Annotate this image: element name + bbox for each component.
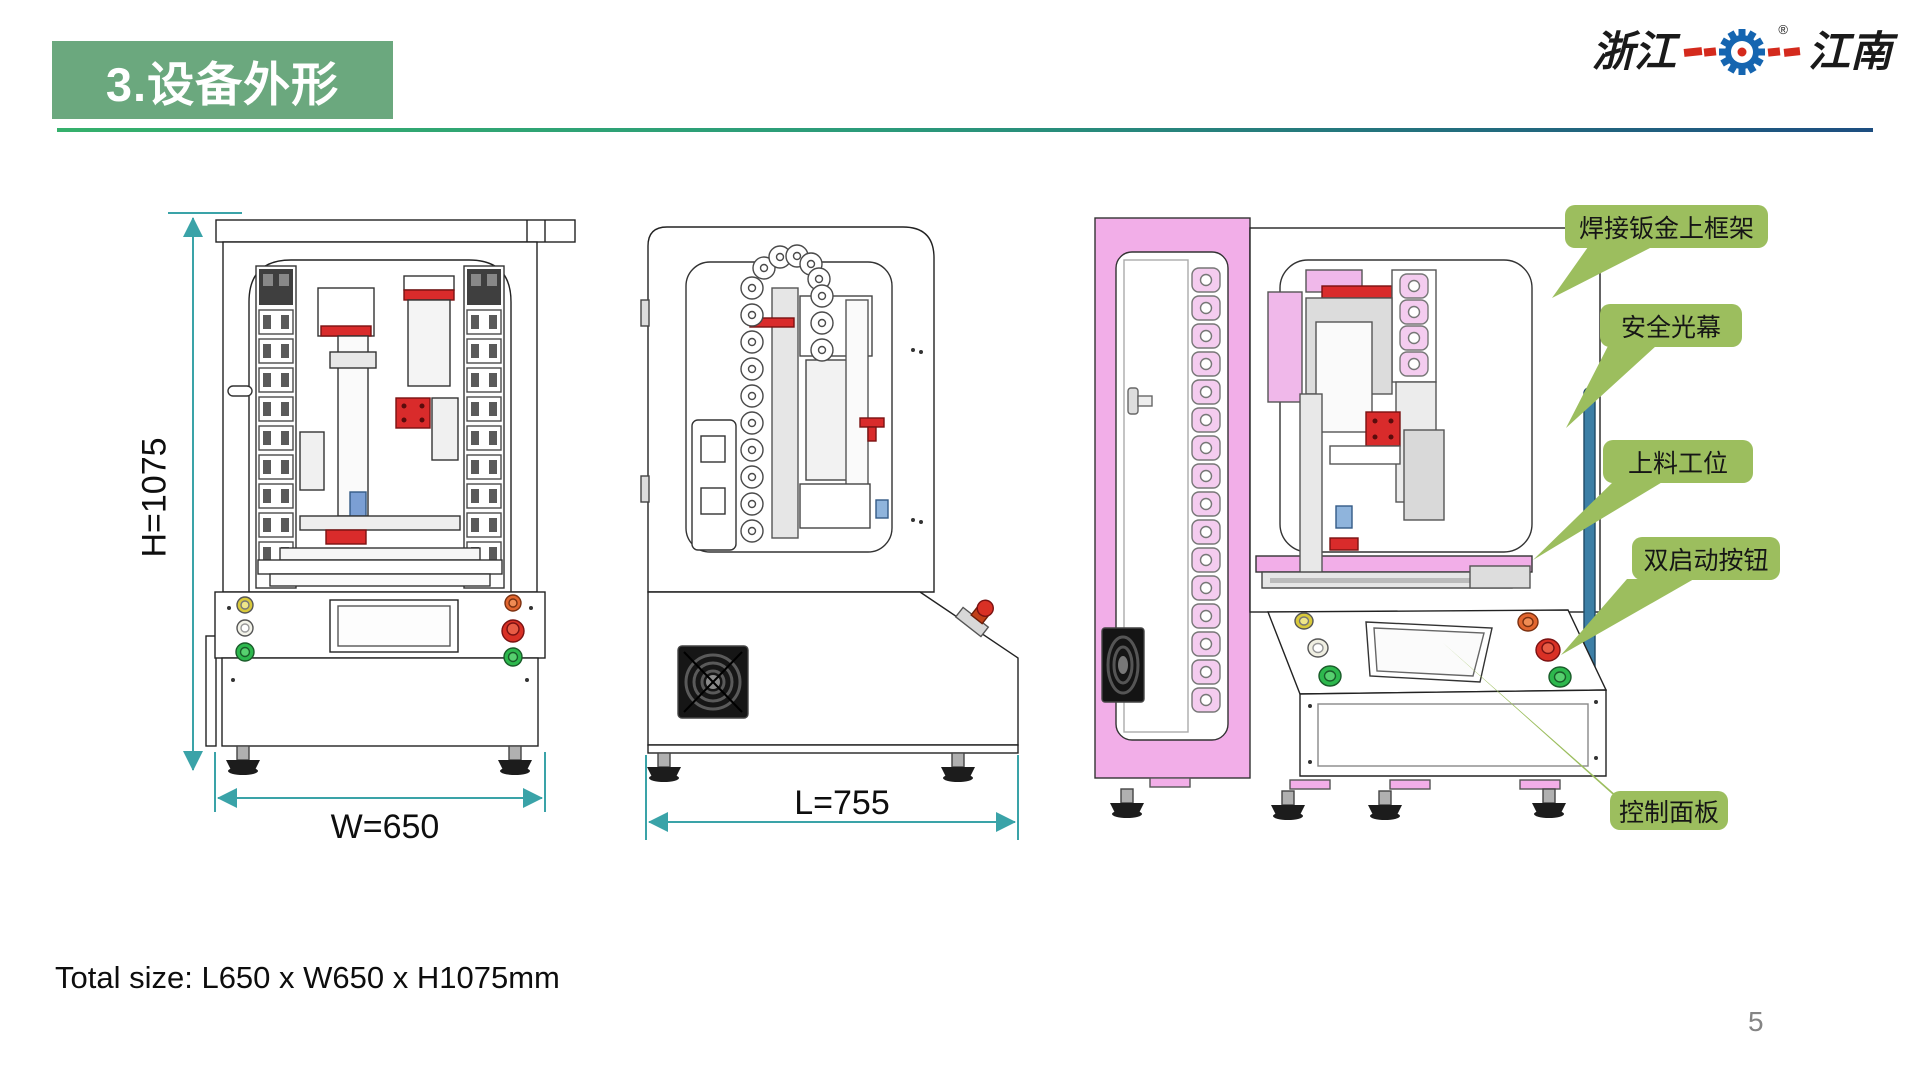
callout-loading-station: 上料工位 xyxy=(1603,440,1753,483)
iso-3d-view-drawing xyxy=(1095,218,1606,820)
front-left-chain-column xyxy=(256,266,296,588)
logo-registered-mark: ® xyxy=(1778,22,1788,37)
front-foot-left xyxy=(226,746,260,775)
side-door xyxy=(692,420,736,550)
front-base-cabinet xyxy=(206,592,545,746)
page-title: 3.设备外形 xyxy=(52,41,393,119)
front-view-drawing xyxy=(168,213,575,812)
iso-foot-1 xyxy=(1110,789,1144,818)
callout-label: 焊接钣金上框架 xyxy=(1579,209,1754,245)
side-view-drawing xyxy=(641,227,1018,840)
width-dimension-label: W=650 xyxy=(315,808,455,847)
length-dimension-label: L=755 xyxy=(772,784,912,823)
iso-fan-grille xyxy=(1102,628,1144,702)
front-buttons-right xyxy=(502,595,524,666)
callout-label: 双启动按钮 xyxy=(1643,541,1768,577)
iso-touch-screen xyxy=(1366,622,1492,682)
front-buttons-left xyxy=(236,597,254,661)
logo-left-text: 浙江 xyxy=(1592,31,1676,73)
drawings-canvas xyxy=(0,0,1920,1080)
iso-foot-3 xyxy=(1368,791,1402,820)
side-foot-left xyxy=(647,753,681,782)
logo-gear-icon: ® xyxy=(1682,24,1802,80)
side-fan-grille xyxy=(678,646,748,718)
callout-label: 安全光幕 xyxy=(1621,308,1721,344)
height-dimension-label: H=1075 xyxy=(136,428,175,568)
header-underline xyxy=(57,128,1873,132)
page-title-text: 3.设备外形 xyxy=(106,46,339,115)
logo-right-text: 江南 xyxy=(1808,31,1892,73)
page-number: 5 xyxy=(1748,1006,1764,1038)
iso-base-front-panel xyxy=(1300,690,1606,776)
total-size-text: Total size: L650 x W650 x H1075mm xyxy=(55,960,560,996)
callout-label: 上料工位 xyxy=(1628,444,1728,480)
front-right-chain-column xyxy=(464,266,504,588)
company-logo: 浙江 xyxy=(1592,22,1892,82)
iso-foot-2 xyxy=(1271,791,1305,820)
callout-welded-sheet-metal-upper-frame: 焊接钣金上框架 xyxy=(1565,205,1768,248)
callout-control-panel: 控制面板 xyxy=(1610,791,1728,830)
callout-safety-light-curtain: 安全光幕 xyxy=(1600,304,1742,347)
callout-label: 控制面板 xyxy=(1619,793,1719,829)
iso-light-curtain-strip xyxy=(1584,388,1595,688)
side-foot-right xyxy=(941,753,975,782)
front-foot-right xyxy=(498,746,532,775)
iso-foot-4 xyxy=(1532,789,1566,818)
callout-dual-start-buttons: 双启动按钮 xyxy=(1632,537,1780,580)
width-dimension xyxy=(215,752,545,812)
slide-root: 3.设备外形 浙江 xyxy=(0,0,1920,1080)
